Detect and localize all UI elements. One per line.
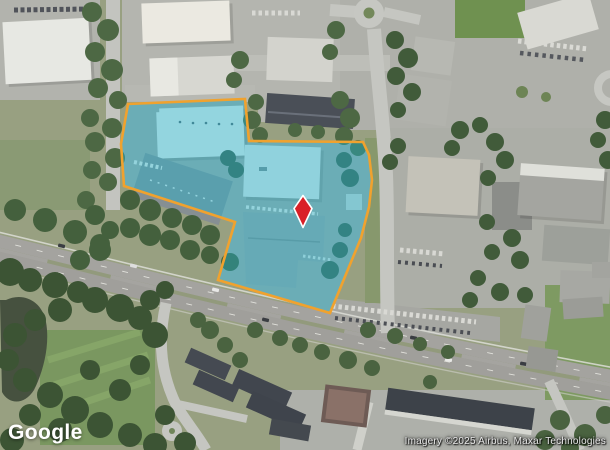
office-building	[542, 225, 610, 266]
imagery-attribution: Imagery ©2025 Airbus, Maxar Technologies	[405, 436, 606, 447]
satellite-imagery	[0, 0, 610, 450]
residential-building	[562, 297, 603, 320]
map-canvas[interactable]: Google Imagery ©2025 Airbus, Maxar Techn…	[0, 0, 610, 450]
office-building	[2, 18, 91, 84]
office-building	[141, 0, 230, 43]
google-logo[interactable]: Google	[8, 421, 83, 445]
office-building	[266, 37, 333, 82]
office-building	[406, 156, 481, 216]
